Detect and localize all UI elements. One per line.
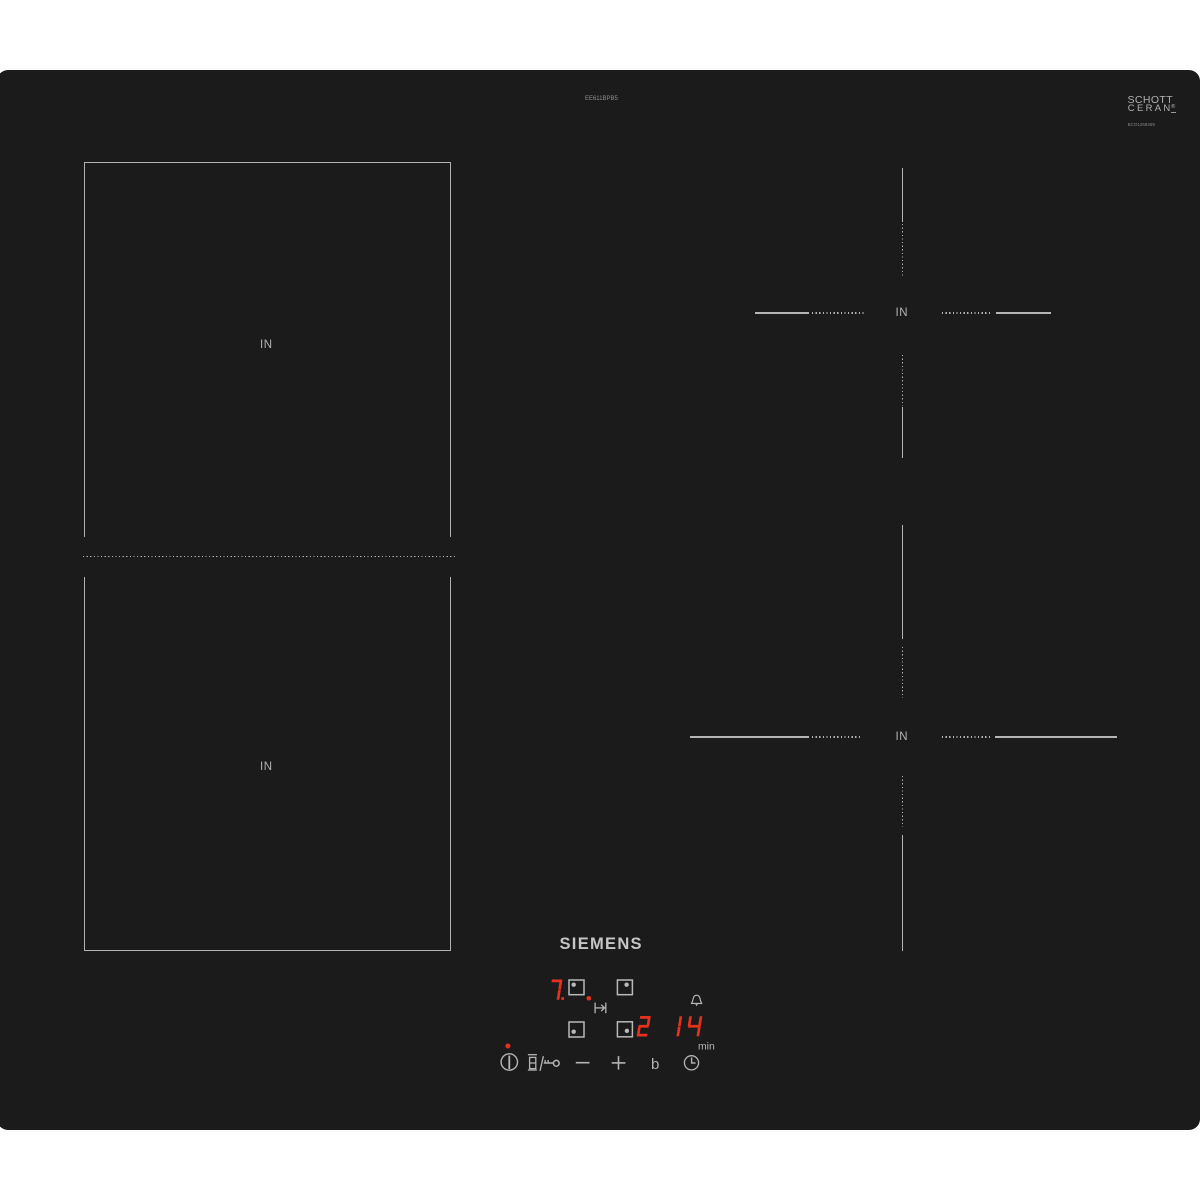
svg-text:b: b xyxy=(651,1056,659,1073)
svg-text:min: min xyxy=(698,1042,715,1053)
